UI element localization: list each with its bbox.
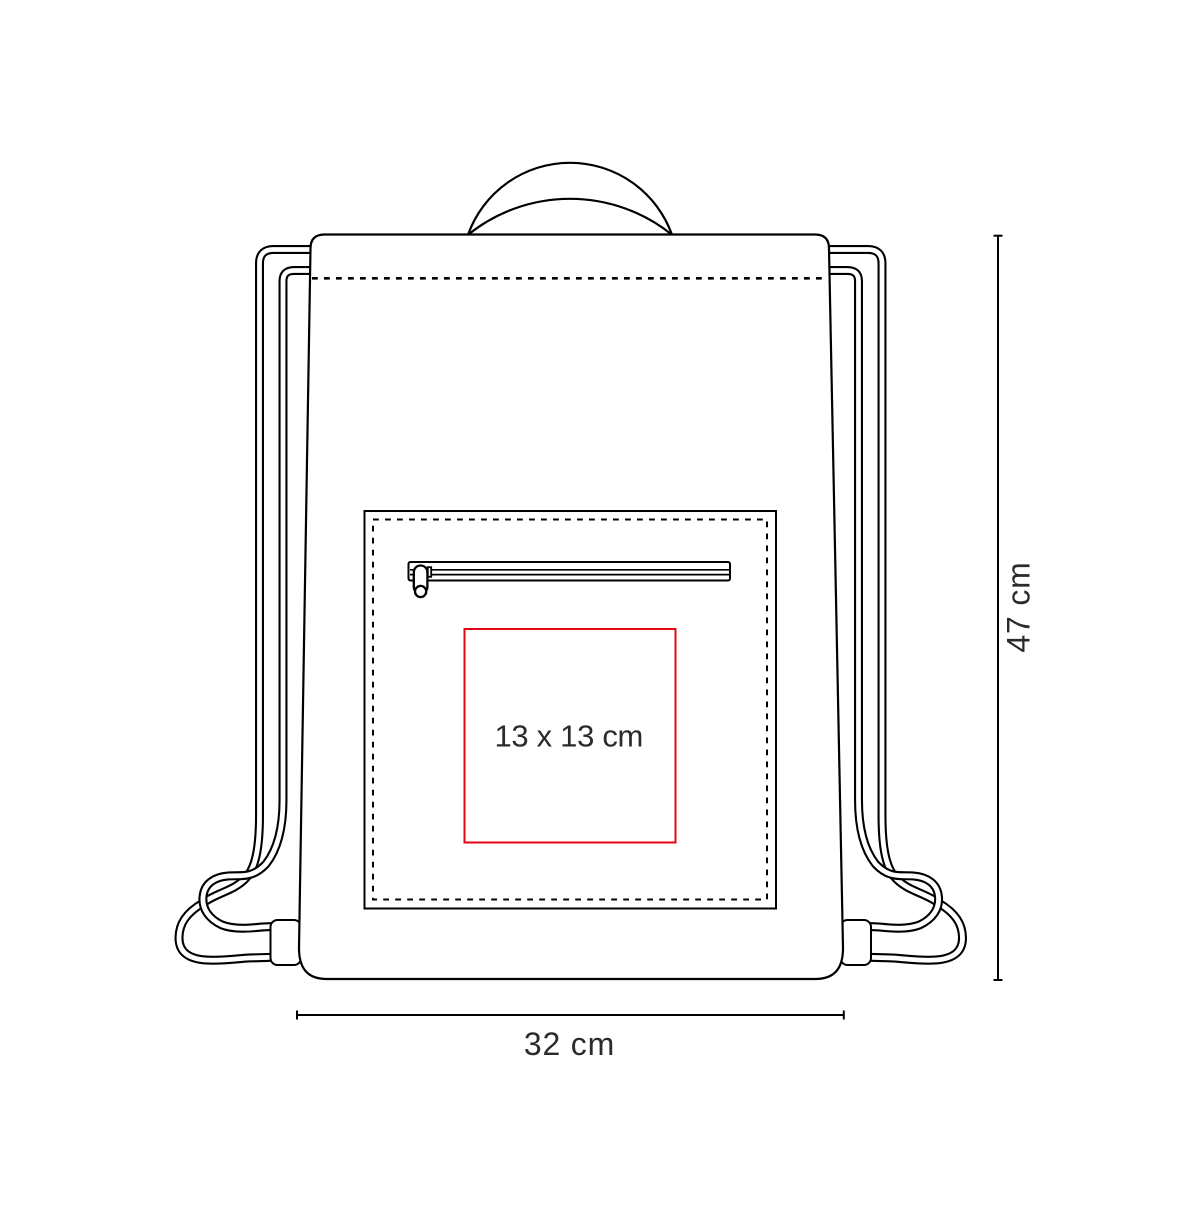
svg-text:13 x 13 cm: 13 x 13 cm bbox=[494, 719, 643, 754]
svg-text:47 cm: 47 cm bbox=[1001, 561, 1037, 652]
svg-text:32 cm: 32 cm bbox=[524, 1026, 615, 1062]
